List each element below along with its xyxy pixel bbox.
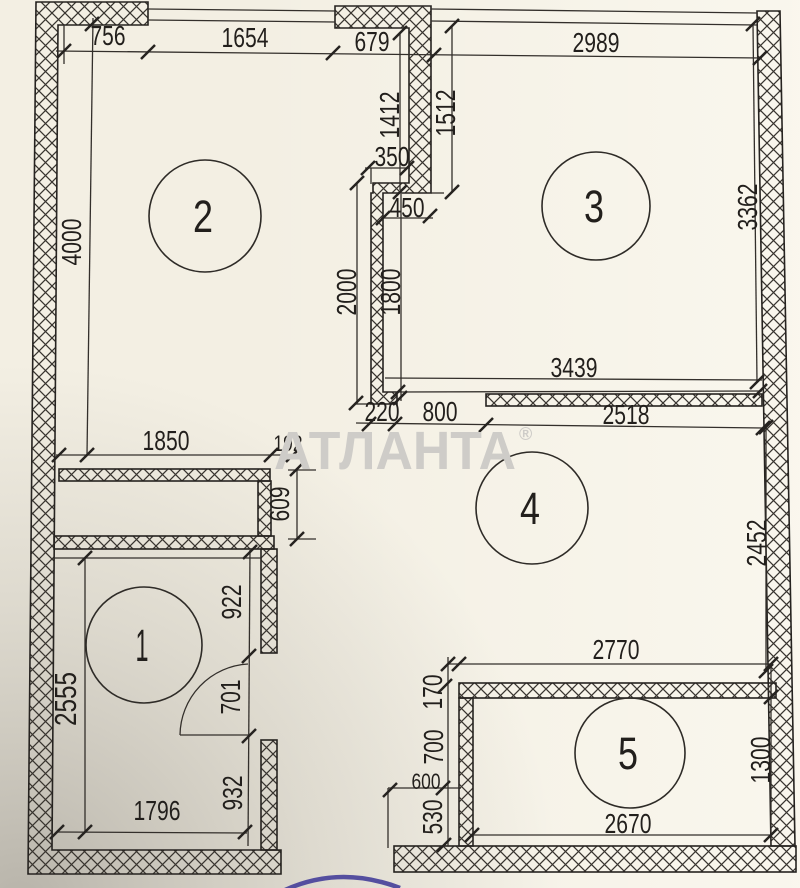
svg-text:1300: 1300: [745, 737, 776, 784]
svg-text:1512: 1512: [430, 90, 461, 137]
svg-text:922: 922: [216, 585, 247, 620]
svg-text:932: 932: [217, 776, 248, 811]
svg-text:700: 700: [418, 730, 449, 765]
svg-text:1654: 1654: [222, 22, 269, 53]
svg-text:1800: 1800: [375, 269, 406, 316]
svg-text:1796: 1796: [134, 795, 181, 826]
svg-text:3: 3: [584, 181, 604, 232]
svg-text:2770: 2770: [593, 634, 640, 665]
svg-text:170: 170: [417, 675, 448, 710]
svg-text:530: 530: [417, 800, 448, 835]
svg-text:609: 609: [264, 487, 295, 522]
svg-text:4: 4: [520, 483, 540, 534]
svg-text:2555: 2555: [48, 672, 83, 726]
svg-text:4000: 4000: [56, 219, 87, 266]
svg-text:756: 756: [91, 20, 126, 51]
svg-text:®: ®: [519, 424, 532, 444]
svg-text:2452: 2452: [741, 520, 772, 567]
svg-text:450: 450: [390, 192, 425, 223]
svg-text:679: 679: [355, 26, 390, 57]
svg-text:2670: 2670: [605, 808, 652, 839]
svg-text:2989: 2989: [573, 27, 620, 58]
svg-text:3439: 3439: [551, 352, 598, 383]
svg-text:2518: 2518: [603, 399, 650, 430]
svg-text:2000: 2000: [331, 269, 362, 316]
svg-text:2: 2: [193, 191, 213, 242]
svg-text:350: 350: [375, 141, 410, 172]
svg-text:701: 701: [215, 680, 246, 715]
svg-text:1412: 1412: [374, 92, 405, 139]
svg-text:АТЛАНТА: АТЛАНТА: [274, 421, 516, 481]
svg-text:600: 600: [412, 769, 441, 794]
svg-text:1: 1: [136, 620, 149, 671]
svg-text:3362: 3362: [732, 184, 763, 231]
svg-text:1850: 1850: [143, 425, 190, 456]
svg-text:5: 5: [618, 728, 638, 779]
